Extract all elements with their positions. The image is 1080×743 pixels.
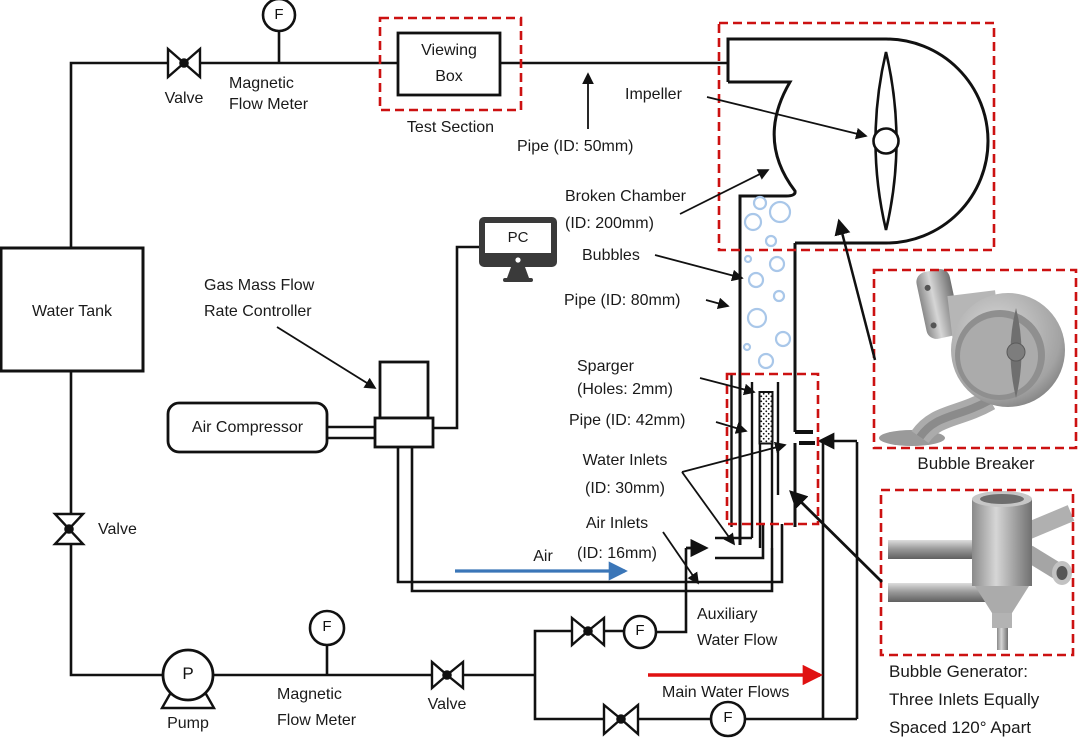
water-tank-label: Water Tank <box>1 301 143 322</box>
magnetic-flow-meter-bottom-label: Magnetic Flow Meter <box>277 682 356 734</box>
pump-symbol-letter: P <box>171 664 205 684</box>
gas-controller-outline <box>375 362 433 447</box>
flow-meter-bottom-left-symbol-letter: F <box>310 618 344 635</box>
viewing-box-label: Viewing Box <box>398 38 500 90</box>
impeller-label: Impeller <box>625 84 682 105</box>
gas-controller-label: Gas Mass Flow Rate Controller <box>204 273 314 325</box>
arrow-water-inlets-upper <box>682 445 785 472</box>
cable-controller-to-pc <box>433 247 480 428</box>
flow-meter-main-symbol-letter: F <box>711 709 745 726</box>
valve-bottom-label: Valve <box>419 694 475 715</box>
cutwater-and-pipe-left-wall <box>728 82 795 545</box>
valve-left-label: Valve <box>98 519 137 540</box>
sparger-label: Sparger (Holes: 2mm) <box>577 355 673 401</box>
impeller-symbol <box>874 52 899 230</box>
bubbles-label: Bubbles <box>582 245 640 266</box>
pipe-42-label: Pipe (ID: 42mm) <box>569 410 685 431</box>
broken-chamber-label: Broken Chamber (ID: 200mm) <box>565 183 686 237</box>
bubble-breaker-caption: Bubble Breaker <box>875 453 1077 474</box>
pc-label: PC <box>485 227 551 248</box>
valve-main-symbol <box>604 705 638 734</box>
valve-top-symbol <box>168 49 200 77</box>
magnetic-flow-meter-top-label: Magnetic Flow Meter <box>229 73 308 115</box>
air-compressor-label: Air Compressor <box>168 417 327 438</box>
valve-left-symbol <box>55 514 83 544</box>
volute-outline <box>728 39 988 243</box>
air-inlets-label: Air Inlets (ID: 16mm) <box>552 509 682 569</box>
pipe-main-risers <box>820 441 857 719</box>
sparger-symbol <box>760 392 773 444</box>
test-section-label: Test Section <box>378 117 523 138</box>
valve-top-label: Valve <box>150 88 218 109</box>
schematic-linework <box>0 0 1080 743</box>
air-label: Air <box>526 546 560 567</box>
arrow-impeller <box>707 97 866 136</box>
arrow-gas-controller <box>277 327 375 388</box>
bubble-generator-caption: Bubble Generator: Three Inlets Equally S… <box>889 658 1039 742</box>
flow-meter-aux-symbol-letter: F <box>623 622 657 639</box>
bubbles-group <box>744 197 790 368</box>
valve-aux-symbol <box>572 618 604 645</box>
pipe-compressor-to-controller <box>327 427 375 438</box>
pipe-80-label: Pipe (ID: 80mm) <box>564 290 680 311</box>
auxiliary-water-flow-label: Auxiliary Water Flow <box>697 602 777 654</box>
water-inlets-label: Water Inlets (ID: 30mm) <box>560 447 690 503</box>
bubble-breaker-photo <box>879 267 1065 446</box>
diagram-canvas: Valve Magnetic Flow Meter Viewing Box Te… <box>0 0 1080 743</box>
arrow-pipe80 <box>706 300 728 306</box>
water-inlet-notch-ticks <box>795 432 815 443</box>
arrow-photo-to-generator <box>791 492 882 582</box>
main-water-flows-label: Main Water Flows <box>662 682 789 703</box>
arrow-bubbles <box>655 255 742 278</box>
pipe-50-label: Pipe (ID: 50mm) <box>517 136 633 157</box>
thick-arrows <box>686 221 882 582</box>
pump-label: Pump <box>158 713 218 734</box>
bubble-generator-photo <box>888 491 1072 650</box>
flow-meter-top-symbol-letter: F <box>262 6 296 23</box>
breaker-assembly-box <box>719 23 994 250</box>
valve-bottom-symbol <box>432 662 463 688</box>
